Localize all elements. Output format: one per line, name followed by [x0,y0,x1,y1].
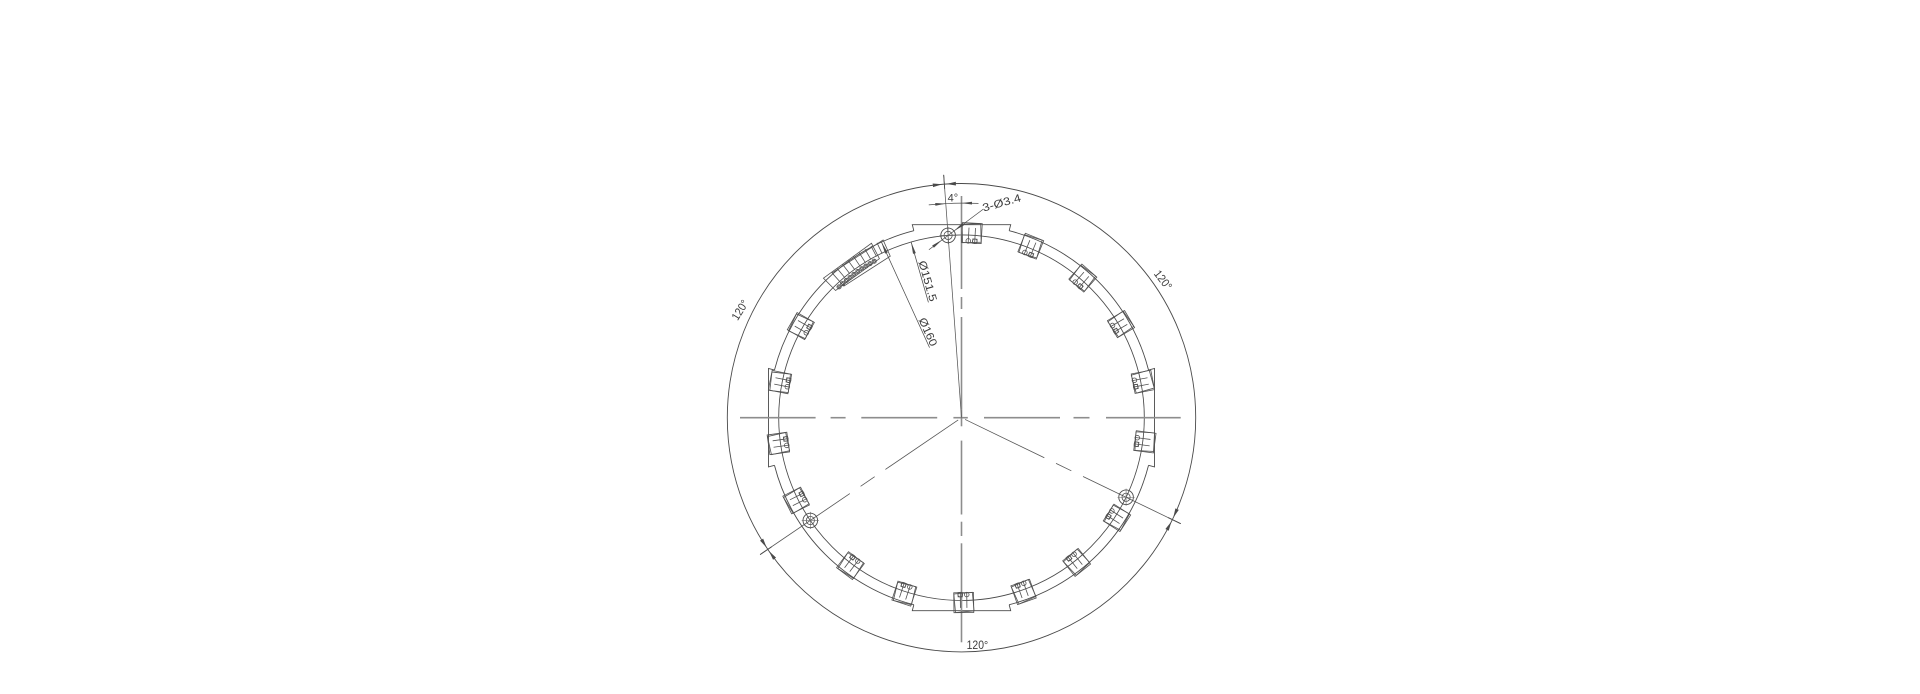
svg-text:Ø151.5: Ø151.5 [915,259,938,303]
svg-text:4°: 4° [948,193,959,205]
svg-text:120°: 120° [1151,268,1174,292]
svg-text:3-Ø3.4: 3-Ø3.4 [981,192,1022,214]
svg-text:120°: 120° [730,298,752,323]
svg-text:Ø160: Ø160 [916,316,939,348]
svg-text:120°: 120° [967,640,989,652]
